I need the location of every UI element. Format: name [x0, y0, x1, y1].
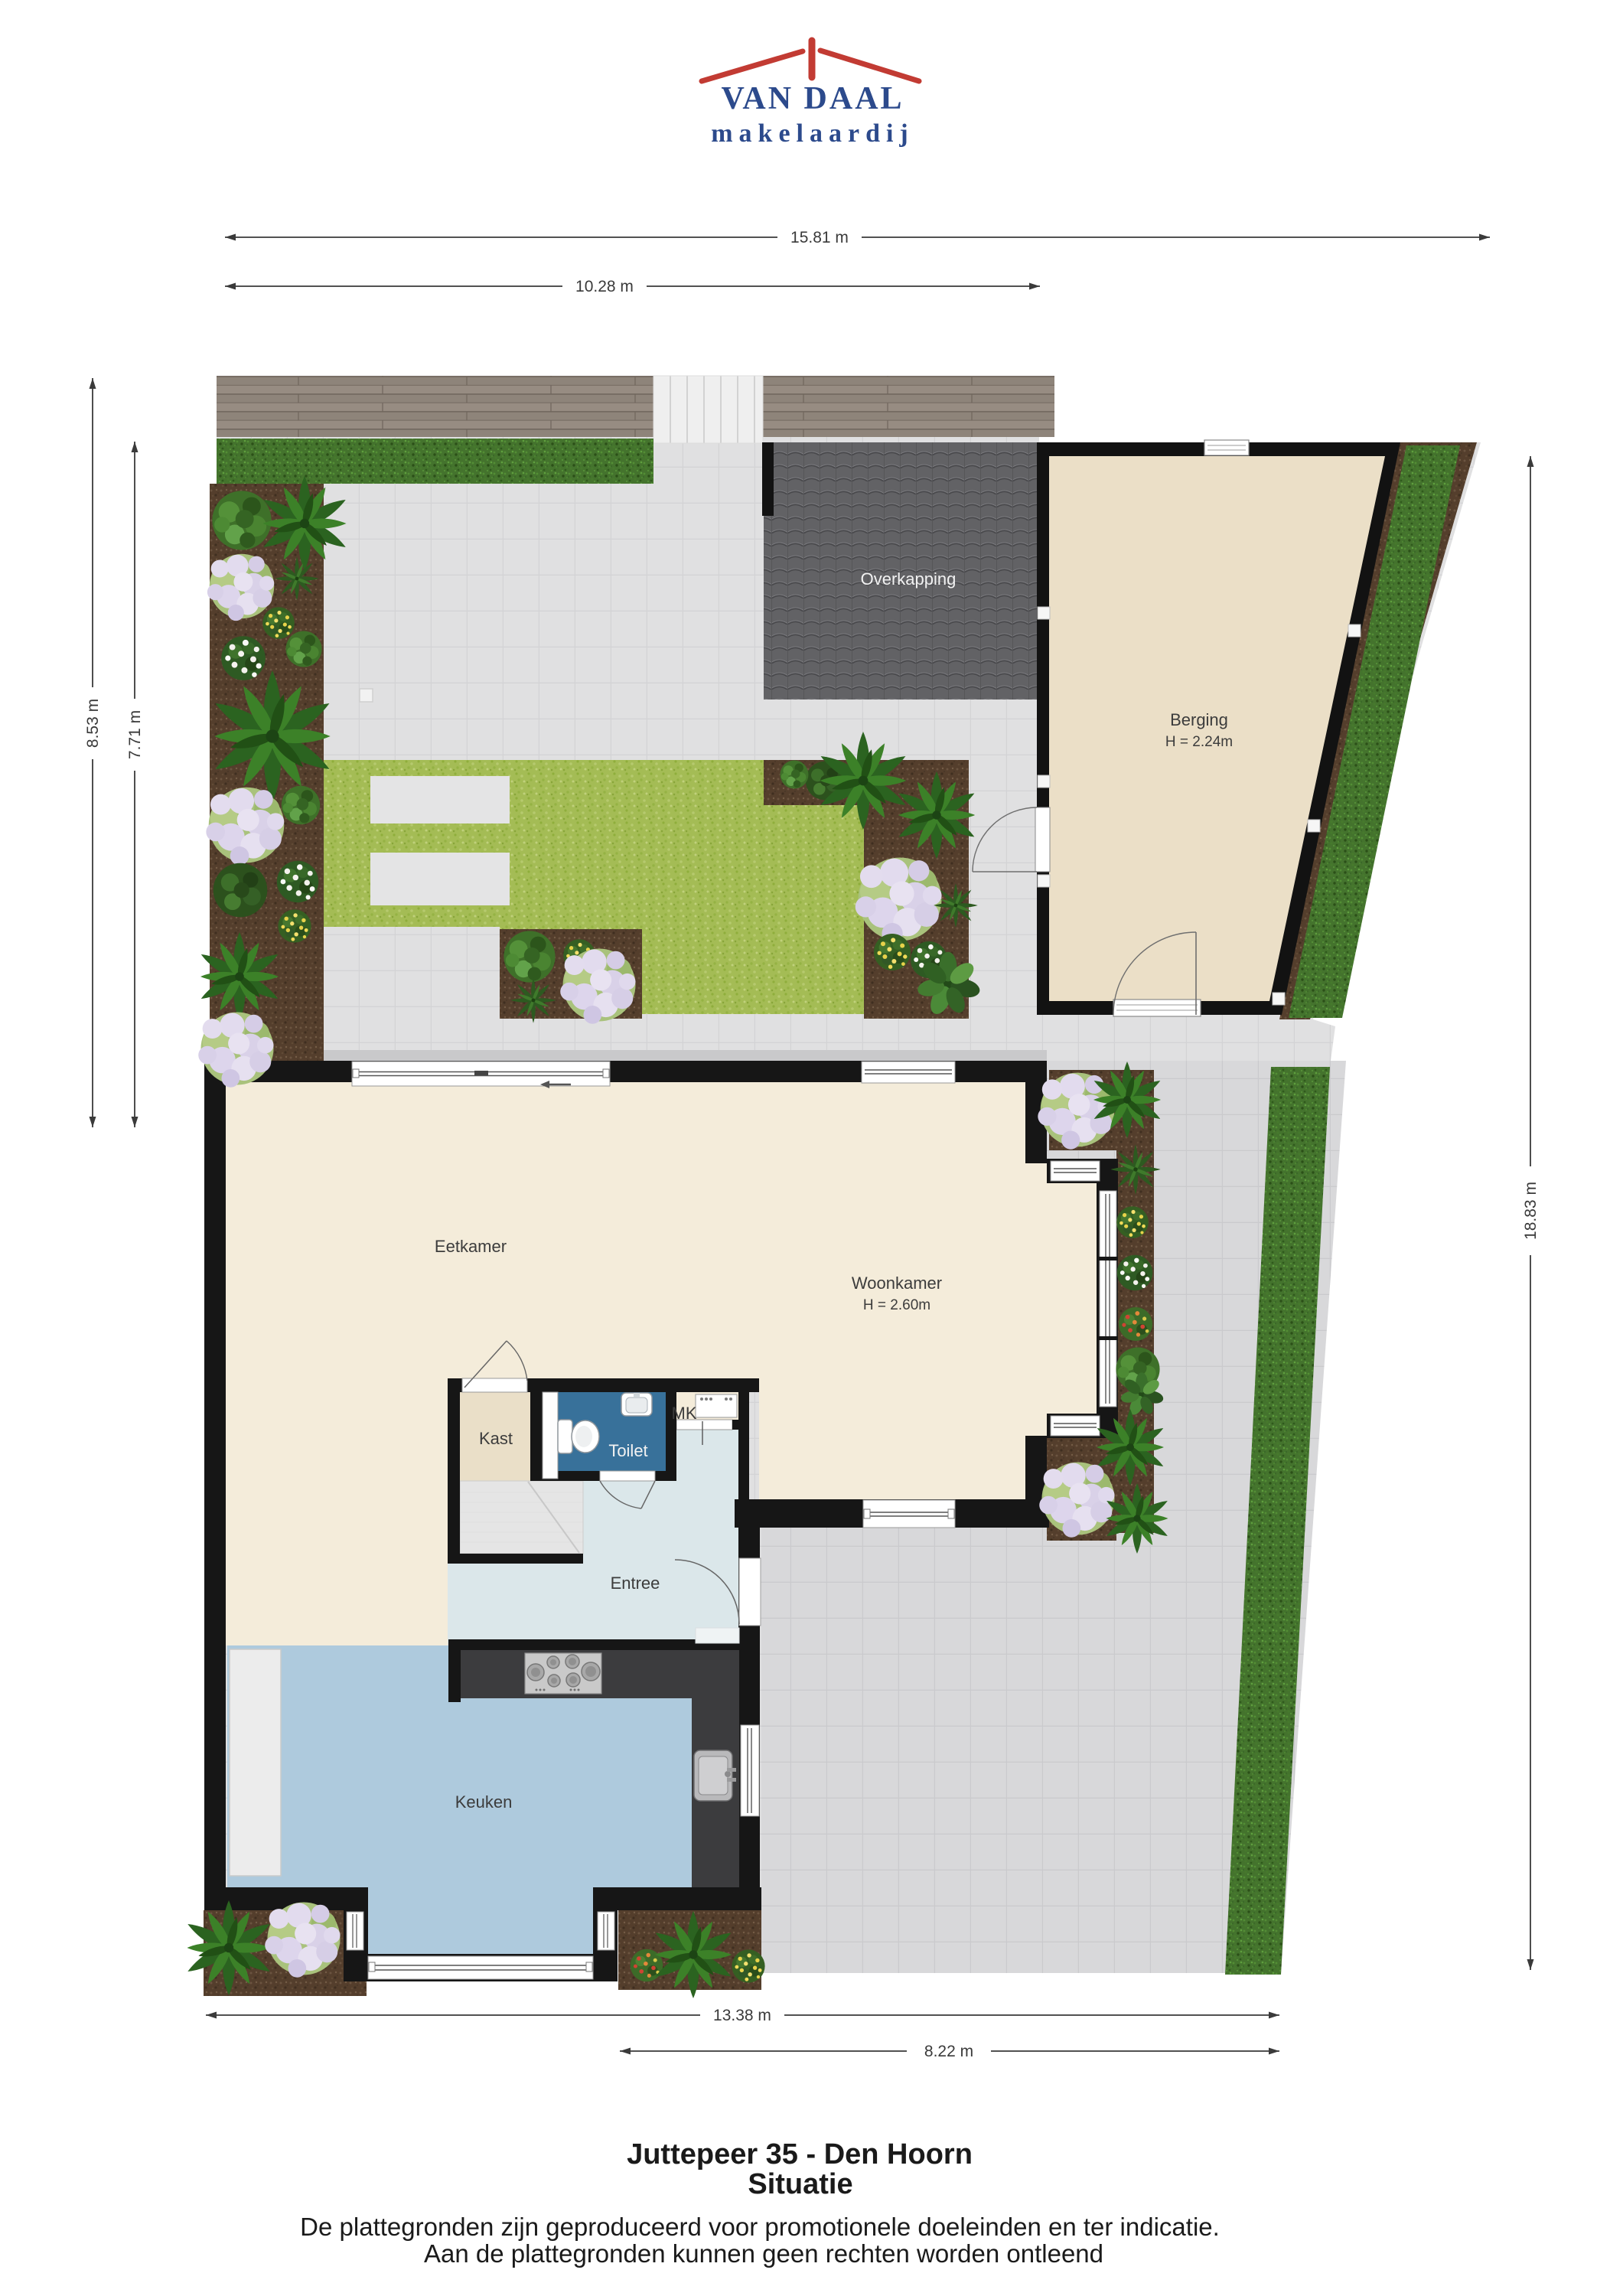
- svg-text:10.28 m: 10.28 m: [575, 278, 634, 295]
- svg-text:Situatie: Situatie: [748, 2168, 852, 2200]
- svg-text:Keuken: Keuken: [455, 1792, 513, 1812]
- svg-text:H = 2.60m: H = 2.60m: [863, 1297, 930, 1313]
- svg-text:Woonkamer: Woonkamer: [852, 1274, 942, 1293]
- svg-text:H = 2.24m: H = 2.24m: [1165, 734, 1233, 750]
- svg-text:8.22 m: 8.22 m: [924, 2043, 973, 2060]
- svg-text:VAN DAAL: VAN DAAL: [721, 81, 904, 116]
- svg-text:Juttepeer 35 - Den Hoorn: Juttepeer 35 - Den Hoorn: [627, 2138, 973, 2170]
- svg-text:Entree: Entree: [611, 1574, 660, 1593]
- svg-text:Toilet: Toilet: [608, 1441, 647, 1460]
- svg-text:18.83 m: 18.83 m: [1522, 1182, 1540, 1240]
- svg-text:makelaardij: makelaardij: [711, 119, 914, 148]
- svg-text:Kast: Kast: [479, 1429, 513, 1448]
- svg-text:7.71 m: 7.71 m: [126, 710, 144, 759]
- svg-text:8.53 m: 8.53 m: [84, 699, 102, 748]
- svg-text:13.38 m: 13.38 m: [713, 2007, 771, 2024]
- svg-text:De plattegronden zijn geproduc: De plattegronden zijn geproduceerd voor …: [300, 2213, 1220, 2241]
- svg-text:Aan de plattegronden kunnen ge: Aan de plattegronden kunnen geen rechten…: [424, 2239, 1103, 2268]
- svg-text:15.81 m: 15.81 m: [790, 229, 849, 246]
- svg-text:Overkapping: Overkapping: [861, 569, 957, 589]
- svg-text:Eetkamer: Eetkamer: [435, 1237, 507, 1256]
- svg-text:Berging: Berging: [1170, 710, 1228, 729]
- svg-text:MK: MK: [672, 1404, 697, 1423]
